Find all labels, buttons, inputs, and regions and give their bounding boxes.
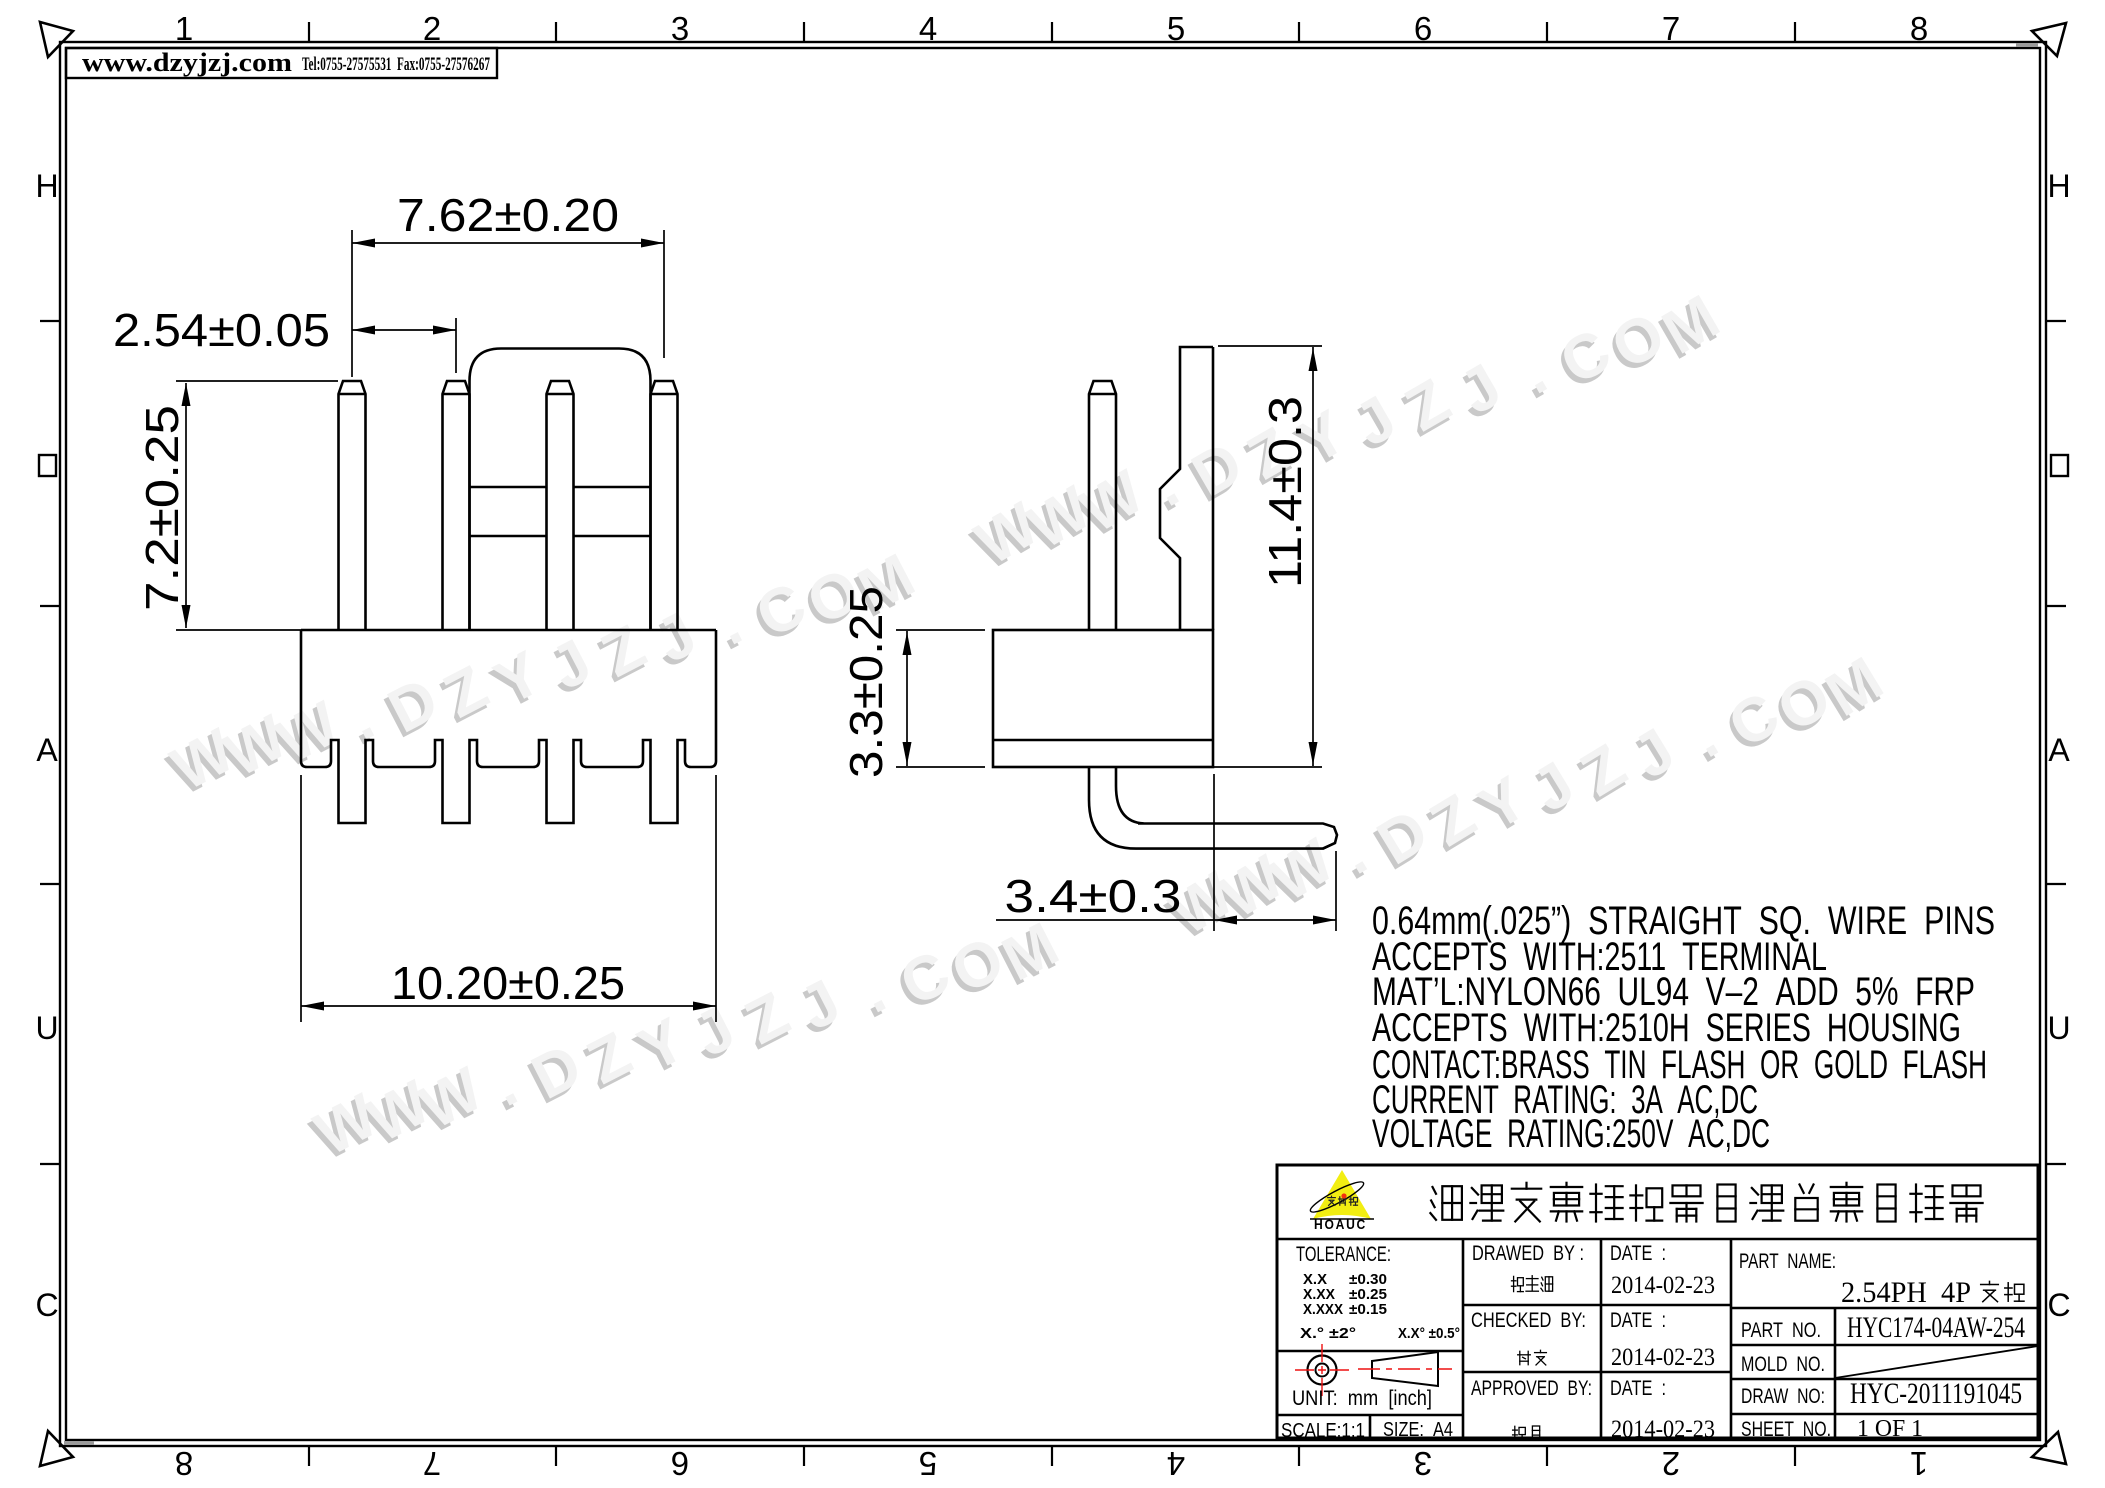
svg-text:U: U <box>35 1010 58 1046</box>
svg-text:X.XXX: X.XXX <box>1303 1301 1343 1318</box>
svg-text:1: 1 <box>1910 1445 1928 1482</box>
svg-text:SCALE:1:1: SCALE:1:1 <box>1281 1420 1365 1442</box>
svg-text:5: 5 <box>1167 10 1185 47</box>
svg-text:3: 3 <box>1414 1445 1432 1482</box>
svg-text:X.X° ±0.5°: X.X° ±0.5° <box>1398 1325 1460 1342</box>
svg-text:U: U <box>2047 1010 2070 1046</box>
svg-text:8: 8 <box>175 1445 193 1482</box>
svg-text:CHECKED BY:: CHECKED BY: <box>1471 1309 1586 1332</box>
svg-text:PART NAME:: PART NAME: <box>1739 1250 1836 1273</box>
svg-text:7: 7 <box>1662 10 1680 47</box>
svg-text:5: 5 <box>919 1445 937 1482</box>
svg-text:H: H <box>35 168 58 204</box>
svg-text:C: C <box>35 1287 58 1323</box>
svg-text:6: 6 <box>1414 10 1432 47</box>
svg-text:A: A <box>2048 732 2070 768</box>
svg-text:DRAWED BY :: DRAWED BY : <box>1472 1242 1584 1265</box>
svg-text:SIZE: A4: SIZE: A4 <box>1383 1419 1453 1441</box>
svg-text:2.54±0.05: 2.54±0.05 <box>113 304 330 356</box>
svg-text:2014-02-23: 2014-02-23 <box>1611 1272 1715 1299</box>
svg-text:MOLD NO.: MOLD NO. <box>1741 1353 1825 1376</box>
svg-text:7: 7 <box>423 1445 441 1482</box>
svg-text:1: 1 <box>175 10 193 47</box>
svg-text:6: 6 <box>671 1445 689 1482</box>
svg-text:PART NO.: PART NO. <box>1741 1319 1821 1342</box>
svg-text:11.4±0.3: 11.4±0.3 <box>1259 396 1311 588</box>
svg-text:HYC174-04AW-254: HYC174-04AW-254 <box>1847 1311 2025 1344</box>
svg-text:UNIT: mm [inch]: UNIT: mm [inch] <box>1292 1387 1432 1410</box>
svg-text:www.dzyjzj.com: www.dzyjzj.com <box>82 48 292 77</box>
svg-text:±0.15: ±0.15 <box>1349 1301 1387 1318</box>
svg-text:4: 4 <box>1167 1445 1185 1482</box>
svg-text:8: 8 <box>1910 10 1928 47</box>
svg-text:APPROVED BY:: APPROVED BY: <box>1471 1377 1592 1400</box>
svg-text:X.° ±2°: X.° ±2° <box>1300 1325 1356 1342</box>
svg-text:SHEET NO.: SHEET NO. <box>1741 1418 1831 1441</box>
svg-text:TOLERANCE:: TOLERANCE: <box>1296 1243 1391 1266</box>
svg-text:DRAW NO:: DRAW NO: <box>1741 1385 1825 1408</box>
svg-text:2: 2 <box>1662 1445 1680 1482</box>
svg-text:7.2±0.25: 7.2±0.25 <box>136 405 188 611</box>
svg-text:C: C <box>2047 1287 2070 1323</box>
svg-text:DATE :: DATE : <box>1610 1377 1666 1400</box>
svg-text:3.4±0.3: 3.4±0.3 <box>1005 870 1182 922</box>
svg-text:3.3±0.25: 3.3±0.25 <box>840 586 892 778</box>
svg-text:4: 4 <box>919 10 937 47</box>
svg-text:DATE :: DATE : <box>1610 1242 1666 1265</box>
svg-text:HOAUC: HOAUC <box>1314 1216 1367 1232</box>
svg-text:2.54PH 4P: 2.54PH 4P <box>1841 1276 1971 1309</box>
svg-text:10.20±0.25: 10.20±0.25 <box>391 957 625 1009</box>
svg-text:H: H <box>2047 168 2070 204</box>
svg-text:1 OF 1: 1 OF 1 <box>1857 1416 1923 1442</box>
svg-text:A: A <box>36 732 58 768</box>
svg-text:DATE :: DATE : <box>1610 1309 1666 1332</box>
svg-text:HYC-2011191045: HYC-2011191045 <box>1850 1377 2022 1410</box>
svg-text:VOLTAGE RATING:250V AC,DC: VOLTAGE RATING:250V AC,DC <box>1372 1112 1770 1156</box>
svg-text:3: 3 <box>671 10 689 47</box>
svg-text:2: 2 <box>423 10 441 47</box>
svg-text:2014-02-23: 2014-02-23 <box>1611 1416 1715 1443</box>
svg-text:7.62±0.20: 7.62±0.20 <box>397 189 619 241</box>
svg-text:2014-02-23: 2014-02-23 <box>1611 1344 1715 1371</box>
svg-text:Tel:0755-27575531 Fax:0755-27: Tel:0755-27575531 Fax:0755-27576267 <box>302 54 490 75</box>
